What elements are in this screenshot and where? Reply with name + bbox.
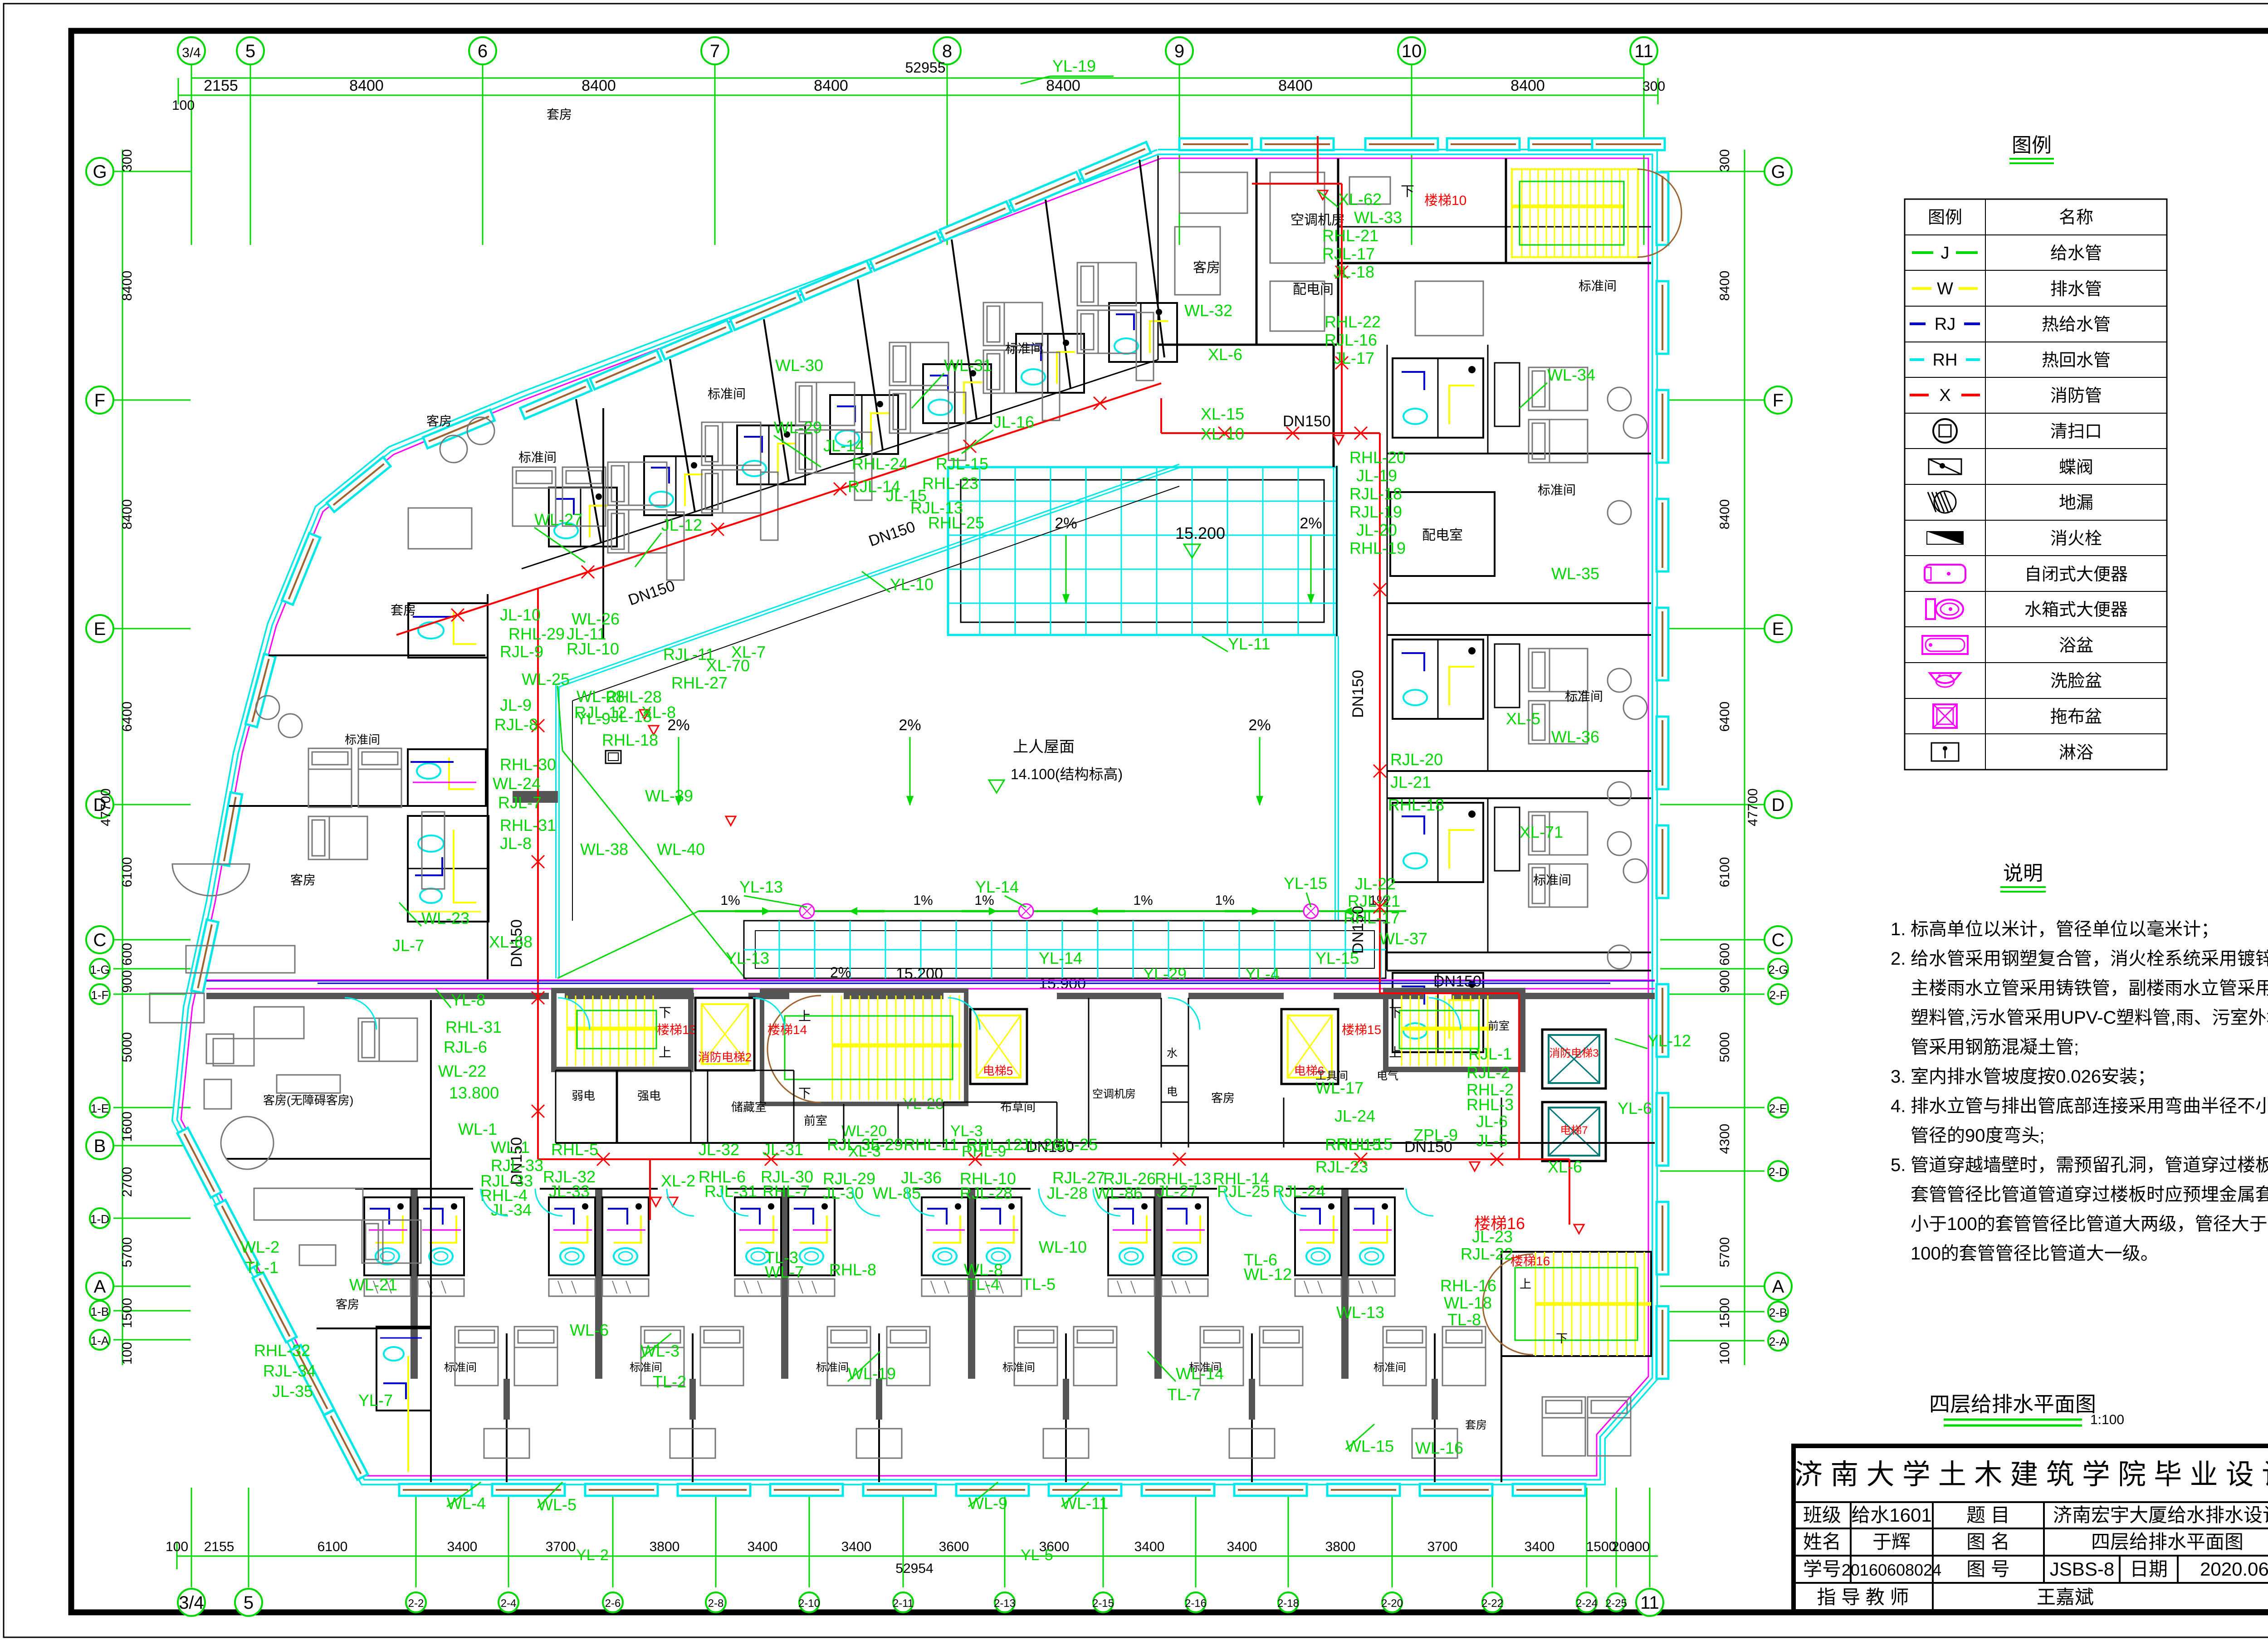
svg-text:WL-39: WL-39 [645,786,693,805]
svg-text:6100: 6100 [120,857,135,888]
svg-text:YL-19: YL-19 [1052,57,1096,75]
svg-text:消防电梯3: 消防电梯3 [1549,1047,1598,1059]
svg-text:标准间: 标准间 [444,1362,477,1374]
svg-text:弱电: 弱电 [572,1089,595,1103]
svg-text:客房: 客房 [1193,260,1220,275]
svg-text:XL-5: XL-5 [1506,709,1540,728]
svg-text:G: G [1771,162,1785,182]
svg-text:DN150: DN150 [1349,670,1367,718]
svg-text:四层给排水平面图: 四层给排水平面图 [2091,1531,2244,1552]
svg-text:JL-26: JL-26 [1021,1135,1061,1154]
svg-text:YL-6: YL-6 [1618,1099,1652,1118]
svg-text:1-A: 1-A [91,1334,109,1347]
svg-text:11: 11 [1634,41,1653,61]
svg-text:YL-12: YL-12 [1647,1031,1691,1050]
svg-text:WL-14: WL-14 [1176,1364,1224,1383]
svg-text:10: 10 [1402,41,1422,61]
svg-text:上人屋面: 上人屋面 [1013,738,1075,756]
svg-text:XL-70: XL-70 [706,656,750,675]
svg-text:JL-12: JL-12 [661,516,702,534]
svg-text:标准间: 标准间 [1374,1362,1406,1374]
svg-text:2%: 2% [1248,717,1271,734]
svg-text:前室: 前室 [1488,1020,1510,1032]
svg-text:RHL-23: RHL-23 [922,474,978,493]
svg-text:清扫口: 清扫口 [2050,422,2102,441]
svg-text:8400: 8400 [1278,77,1313,94]
svg-text:RH: RH [1933,351,1958,370]
svg-text:14.100(结构标高): 14.100(结构标高) [1011,766,1123,782]
svg-text:RHL-21: RHL-21 [1322,226,1378,245]
svg-text:XL-68: XL-68 [489,932,533,951]
svg-text:标准间: 标准间 [816,1362,849,1374]
svg-text:客房(无障碍客房): 客房(无障碍客房) [263,1093,353,1107]
svg-text:100: 100 [166,1539,188,1554]
svg-text:标准间: 标准间 [1538,483,1576,497]
svg-text:15.200: 15.200 [1175,524,1225,542]
svg-text:WL-27: WL-27 [534,510,582,529]
svg-text:2-20: 2-20 [1381,1597,1403,1610]
svg-text:WL-11: WL-11 [1061,1494,1108,1513]
svg-text:RHL-17: RHL-17 [1344,908,1400,927]
svg-text:2-D: 2-D [1769,1165,1788,1179]
svg-text:DN150: DN150 [1283,413,1331,430]
svg-text:1500: 1500 [120,1298,135,1328]
svg-text:WL-19: WL-19 [848,1364,896,1383]
svg-text:JL-13: JL-13 [611,707,652,726]
svg-text:2155: 2155 [204,77,238,94]
svg-text:RHL-20: RHL-20 [1349,448,1406,467]
svg-text:楼梯10: 楼梯10 [1424,193,1466,208]
svg-text:图 名: 图 名 [1966,1531,2010,1552]
svg-text:900: 900 [1717,970,1732,993]
svg-text:ZPL-9: ZPL-9 [1413,1126,1458,1144]
svg-text:RJL-6: RJL-6 [444,1038,487,1056]
svg-text:3/4: 3/4 [179,1593,204,1613]
svg-text:管径的90度弯头;: 管径的90度弯头; [1911,1126,2045,1146]
svg-text:JL-5: JL-5 [1476,1131,1508,1150]
svg-text:2-16: 2-16 [1185,1597,1207,1610]
svg-text:客房: 客房 [426,414,452,428]
svg-text:排水立管与排出管底部连接采用弯曲半径不小于4倍: 排水立管与排出管底部连接采用弯曲半径不小于4倍 [1911,1096,2268,1116]
svg-text:JL-24: JL-24 [1334,1107,1375,1125]
svg-text:A: A [1772,1277,1784,1297]
svg-text:配电室: 配电室 [1422,528,1463,543]
svg-text:3600: 3600 [939,1539,969,1554]
svg-text:JSBS-8: JSBS-8 [2050,1558,2114,1580]
svg-text:室内排水管坡度按0.026安装；: 室内排水管坡度按0.026安装； [1911,1067,2156,1087]
svg-text:排水管: 排水管 [2050,280,2102,299]
svg-text:RHL-27: RHL-27 [671,674,728,692]
svg-text:下: 下 [1389,1005,1402,1020]
svg-text:2-24: 2-24 [1576,1597,1598,1610]
svg-text:100: 100 [1717,1342,1732,1365]
svg-text:标准间: 标准间 [518,450,557,464]
svg-text:RHL-18: RHL-18 [1388,796,1444,814]
svg-text:楼梯16: 楼梯16 [1510,1254,1550,1268]
svg-text:4300: 4300 [1717,1124,1732,1154]
svg-text:J: J [1941,244,1950,263]
svg-text:RJL-10: RJL-10 [567,639,619,658]
svg-text:WL-12: WL-12 [1244,1265,1292,1284]
svg-text:管采用钢筋混凝土管;: 管采用钢筋混凝土管; [1911,1037,2079,1057]
svg-text:RJL-2: RJL-2 [1466,1063,1510,1082]
svg-text:13.800: 13.800 [449,1084,499,1102]
svg-text:WL-25: WL-25 [522,670,570,688]
svg-text:塑料管,污水管采用UPV-C塑料管,雨、污室外埋地: 塑料管,污水管采用UPV-C塑料管,雨、污室外埋地 [1911,1008,2268,1028]
svg-text:1-F: 1-F [91,988,109,1002]
svg-text:2%: 2% [899,717,921,734]
svg-text:标准间: 标准间 [630,1362,662,1374]
svg-text:消火栓: 消火栓 [2050,529,2102,548]
svg-text:1-D: 1-D [90,1212,109,1226]
svg-text:学号: 学号 [1803,1558,1841,1580]
svg-text:小于100的套管管径比管道大两级，管径大于等于: 小于100的套管管径比管道大两级，管径大于等于 [1911,1214,2268,1234]
svg-text:RJL-26: RJL-26 [1103,1169,1156,1188]
svg-text:2-4: 2-4 [501,1597,517,1610]
svg-text:RHL-31: RHL-31 [445,1018,502,1036]
svg-text:3400: 3400 [1134,1539,1165,1554]
svg-text:RJL-7: RJL-7 [498,793,542,812]
svg-text:标准间: 标准间 [1565,689,1603,703]
svg-text:强电: 强电 [637,1089,661,1103]
svg-text:TL-7: TL-7 [1167,1385,1201,1404]
svg-text:2155: 2155 [204,1539,235,1554]
svg-text:9: 9 [1174,41,1184,61]
svg-text:2-6: 2-6 [605,1597,621,1610]
svg-text:JL-6: JL-6 [1476,1112,1508,1131]
svg-text:D: D [1772,795,1785,815]
svg-text:4.: 4. [1891,1096,1906,1116]
svg-text:2-15: 2-15 [1092,1597,1114,1610]
svg-text:JL-23: JL-23 [1472,1227,1513,1246]
svg-text:2-22: 2-22 [1481,1597,1503,1610]
svg-text:20160608024: 20160608024 [1842,1561,1941,1579]
svg-text:RHL-7: RHL-7 [763,1182,810,1201]
svg-text:RHL-32: RHL-32 [254,1341,310,1360]
svg-text:标准间: 标准间 [1579,279,1617,293]
svg-text:2-8: 2-8 [708,1597,724,1610]
svg-text:JL-17: JL-17 [1334,349,1374,367]
svg-text:上: 上 [659,1045,671,1059]
svg-text:6100: 6100 [1717,857,1732,888]
svg-text:8400: 8400 [1717,499,1732,530]
svg-text:600: 600 [1717,943,1732,966]
svg-text:空调机房: 空调机房 [1092,1088,1136,1100]
svg-text:8400: 8400 [120,271,135,301]
svg-text:电: 电 [1167,1086,1178,1098]
svg-text:B: B [94,1136,106,1156]
svg-text:YL-15: YL-15 [1284,874,1327,893]
svg-text:8400: 8400 [1717,271,1732,301]
svg-text:2700: 2700 [120,1167,135,1197]
svg-text:3400: 3400 [841,1539,872,1554]
svg-text:RHL-24: RHL-24 [852,454,908,473]
svg-text:WL-31: WL-31 [944,356,992,375]
svg-text:标准间: 标准间 [708,387,746,401]
svg-text:2-F: 2-F [1769,988,1787,1002]
svg-text:YL-10: YL-10 [890,575,934,594]
svg-text:电梯7: 电梯7 [1560,1124,1588,1137]
svg-text:RHL-19: RHL-19 [1349,539,1406,557]
svg-text:2020.06: 2020.06 [2200,1558,2268,1580]
svg-text:2-11: 2-11 [893,1597,914,1610]
svg-text:52955: 52955 [905,59,946,76]
svg-text:WL-9: WL-9 [968,1494,1007,1513]
svg-text:WL-22: WL-22 [438,1062,486,1080]
svg-text:WL-18: WL-18 [1444,1293,1492,1312]
svg-text:说明: 说明 [2003,862,2043,884]
svg-text:济南宏宇大厦给水排水设计: 济南宏宇大厦给水排水设计 [2053,1504,2268,1526]
svg-text:给水管: 给水管 [2050,244,2102,263]
svg-text:3400: 3400 [1227,1539,1257,1554]
svg-text:2%: 2% [830,964,851,981]
svg-text:套房: 套房 [547,107,572,122]
svg-text:楼梯13: 楼梯13 [657,1023,696,1037]
svg-text:客房: 客房 [290,873,316,887]
svg-text:TL-2: TL-2 [653,1372,686,1391]
svg-text:2-G: 2-G [1768,963,1788,976]
svg-text:WL-17: WL-17 [1315,1079,1364,1097]
svg-text:WL-1: WL-1 [491,1138,530,1157]
svg-text:RJL-16: RJL-16 [1325,331,1377,349]
svg-text:YL-14: YL-14 [975,878,1019,896]
svg-text:WL-35: WL-35 [1551,564,1599,583]
svg-text:WL-7: WL-7 [765,1263,804,1281]
svg-text:下: 下 [659,1005,671,1020]
svg-text:WL-24: WL-24 [493,774,541,793]
svg-text:WL-29: WL-29 [774,418,822,437]
svg-text:3400: 3400 [748,1539,778,1554]
svg-text:消防电梯2: 消防电梯2 [698,1050,752,1064]
svg-text:主楼雨水立管采用铸铁管，副楼雨水立管采用UPV-C: 主楼雨水立管采用铸铁管，副楼雨水立管采用UPV-C [1911,978,2268,998]
svg-text:JL-14: JL-14 [823,436,864,455]
svg-text:上: 上 [1389,1045,1402,1059]
svg-text:RJL-28: RJL-28 [960,1184,1012,1202]
svg-text:淋浴: 淋浴 [2059,743,2093,762]
svg-text:A: A [94,1277,106,1297]
svg-text:WL-38: WL-38 [580,840,628,859]
svg-text:JL-31: JL-31 [763,1140,803,1159]
svg-text:RJL-23: RJL-23 [1315,1157,1368,1176]
svg-text:1500: 1500 [1717,1298,1732,1328]
svg-text:上: 上 [798,1009,811,1023]
svg-text:2-13: 2-13 [994,1597,1016,1610]
svg-text:水箱式大便器: 水箱式大便器 [2024,600,2128,620]
svg-text:RJL-21: RJL-21 [1348,892,1400,910]
svg-text:图 号: 图 号 [1966,1558,2010,1580]
svg-text:5.: 5. [1891,1155,1906,1175]
svg-text:RJL-31: RJL-31 [704,1182,757,1201]
svg-text:100: 100 [172,98,195,113]
svg-text:900: 900 [120,970,135,993]
svg-text:WL-23: WL-23 [421,909,469,927]
svg-text:RHL-22: RHL-22 [1325,312,1381,331]
svg-text:JL-20: JL-20 [1356,521,1397,539]
svg-text:客房: 客房 [336,1298,359,1311]
svg-text:WL-5: WL-5 [538,1495,577,1514]
svg-text:5700: 5700 [1717,1237,1732,1268]
svg-text:2-18: 2-18 [1277,1597,1299,1610]
svg-text:5: 5 [245,41,255,61]
svg-text:RHL-13: RHL-13 [1155,1169,1211,1188]
svg-text:JL-36: JL-36 [901,1168,942,1187]
svg-text:热回水管: 热回水管 [2042,351,2111,370]
svg-text:下: 下 [1401,184,1414,199]
svg-text:套房: 套房 [1465,1419,1487,1431]
svg-text:洗脸盆: 洗脸盆 [2050,672,2102,691]
svg-text:XL-71: XL-71 [1520,823,1563,841]
svg-text:F: F [94,390,105,410]
svg-text:52954: 52954 [895,1561,933,1576]
svg-text:WL-2: WL-2 [240,1238,279,1256]
svg-text:WL-33: WL-33 [1354,208,1402,227]
svg-text:300: 300 [1717,149,1732,172]
svg-text:WL-16: WL-16 [1415,1439,1463,1457]
svg-text:JL-35: JL-35 [272,1382,313,1401]
svg-text:WL-34: WL-34 [1547,366,1595,384]
svg-text:JL-22: JL-22 [1355,874,1396,893]
svg-text:下: 下 [1556,1332,1568,1345]
svg-text:2-A: 2-A [1769,1335,1788,1348]
svg-text:RHL-29: RHL-29 [508,625,565,643]
svg-text:8400: 8400 [814,77,848,94]
svg-text:RHL-11: RHL-11 [904,1135,958,1154]
svg-text:YL-14: YL-14 [1039,949,1082,967]
svg-text:JL-25: JL-25 [1057,1135,1098,1154]
svg-text:3.: 3. [1891,1067,1906,1087]
svg-text:XL-6: XL-6 [1548,1157,1582,1176]
svg-text:6: 6 [478,41,488,61]
svg-text:100: 100 [120,1342,135,1365]
svg-text:RHL-25: RHL-25 [928,513,984,532]
svg-text:WL-37: WL-37 [1379,929,1427,948]
svg-text:RJL-20: RJL-20 [1390,750,1443,769]
svg-text:配电间: 配电间 [1293,282,1334,297]
svg-text:JL-30: JL-30 [823,1184,864,1202]
svg-text:空调机房: 空调机房 [1290,213,1345,228]
svg-text:RJL-15: RJL-15 [936,454,988,473]
svg-text:2%: 2% [1300,515,1322,532]
svg-text:WL-6: WL-6 [570,1321,609,1339]
svg-text:给水1601: 给水1601 [1851,1504,1931,1526]
svg-text:电气: 电气 [1377,1070,1398,1082]
svg-text:RHL-16: RHL-16 [1440,1276,1496,1295]
svg-text:YL-8: YL-8 [451,991,485,1009]
svg-text:布草间: 布草间 [1000,1100,1036,1114]
svg-text:47700: 47700 [98,788,113,826]
svg-text:11: 11 [1640,1593,1659,1613]
svg-text:前室: 前室 [804,1114,827,1127]
svg-text:蝶阀: 蝶阀 [2059,458,2093,477]
svg-text:WL-13: WL-13 [1336,1303,1384,1322]
svg-text:题 目: 题 目 [1966,1504,2010,1526]
svg-text:消防管: 消防管 [2050,386,2102,405]
svg-text:C: C [93,930,107,950]
svg-text:8400: 8400 [582,77,616,94]
svg-text:JL-32: JL-32 [699,1140,739,1159]
svg-text:套房: 套房 [391,603,416,617]
svg-text:TL-8: TL-8 [1447,1310,1481,1329]
svg-text:JL-18: JL-18 [1334,263,1374,281]
svg-text:日期: 日期 [2130,1558,2168,1580]
svg-text:3800: 3800 [650,1539,680,1554]
svg-text:JL-29: JL-29 [862,1135,903,1154]
svg-text:标准间: 标准间 [1005,342,1043,356]
svg-text:2-2: 2-2 [408,1597,424,1610]
svg-text:6100: 6100 [318,1539,348,1554]
svg-text:1%: 1% [1133,893,1153,908]
svg-text:1%: 1% [720,893,740,908]
svg-text:JL-21: JL-21 [1390,773,1431,791]
svg-text:RJL-8: RJL-8 [494,715,538,734]
svg-text:JL-16: JL-16 [993,413,1034,431]
svg-text:RJL-27: RJL-27 [1052,1168,1105,1187]
svg-text:拖布盆: 拖布盆 [2050,708,2102,727]
svg-text:1%: 1% [1215,893,1234,908]
svg-text:给水管采用钢塑复合管，消火栓系统采用镀锌钢管，: 给水管采用钢塑复合管，消火栓系统采用镀锌钢管， [1911,949,2268,969]
svg-text:地漏: 地漏 [2059,493,2093,512]
svg-text:XL-2: XL-2 [661,1171,695,1190]
svg-text:电梯5: 电梯5 [983,1064,1013,1078]
svg-text:3400: 3400 [1525,1539,1555,1554]
svg-text:3400: 3400 [447,1539,478,1554]
svg-text:6400: 6400 [1717,702,1732,732]
svg-text:JL-33: JL-33 [549,1182,590,1201]
svg-text:1-G: 1-G [90,963,109,976]
svg-text:3700: 3700 [1427,1539,1458,1554]
svg-text:3/4: 3/4 [182,45,201,60]
svg-text:3700: 3700 [546,1539,576,1554]
svg-text:300: 300 [1627,1539,1650,1554]
svg-text:JL-19: JL-19 [1356,466,1397,485]
svg-text:王嘉斌: 王嘉斌 [2037,1586,2094,1608]
svg-text:RHL-12: RHL-12 [966,1135,1022,1154]
svg-text:6400: 6400 [120,702,135,732]
svg-text:RJL-17: RJL-17 [1322,244,1375,263]
svg-text:1%: 1% [913,893,933,908]
svg-text:RHL-18: RHL-18 [602,731,658,749]
svg-text:YL-2: YL-2 [576,1547,609,1564]
svg-text:5000: 5000 [120,1032,135,1063]
svg-text:300: 300 [120,149,135,172]
svg-text:楼梯15: 楼梯15 [1342,1023,1381,1037]
svg-text:上: 上 [1520,1277,1531,1291]
svg-text:RJL-1: RJL-1 [1468,1045,1512,1063]
svg-text:1.: 1. [1891,919,1906,939]
svg-text:WL-1: WL-1 [458,1120,497,1138]
svg-text:DN150: DN150 [1433,973,1481,990]
svg-text:储藏室: 储藏室 [731,1100,767,1114]
svg-text:浴盆: 浴盆 [2059,636,2093,655]
svg-text:RJL-19: RJL-19 [1349,503,1402,521]
svg-text:C: C [1772,930,1785,950]
svg-text:TL-4: TL-4 [966,1275,1000,1293]
svg-text:RHL-28: RHL-28 [606,688,662,706]
svg-text:客房: 客房 [1211,1091,1235,1105]
svg-text:RJL-34: RJL-34 [263,1362,316,1380]
svg-text:XL-15: XL-15 [1201,405,1244,423]
svg-text:图例: 图例 [2012,134,2052,156]
svg-text:WL-40: WL-40 [657,840,705,859]
svg-text:WL-32: WL-32 [1184,301,1232,320]
svg-text:于辉: 于辉 [1872,1531,1911,1552]
svg-text:济 南 大 学 土 木 建 筑 学 院 毕 业 设 计: 济 南 大 学 土 木 建 筑 学 院 毕 业 设 计 [1794,1459,2268,1490]
svg-text:5000: 5000 [1717,1032,1732,1063]
svg-text:2-B: 2-B [1769,1306,1787,1319]
svg-text:RJL-9: RJL-9 [500,642,543,661]
svg-text:1-E: 1-E [91,1102,109,1115]
svg-text:TL-1: TL-1 [245,1258,279,1277]
